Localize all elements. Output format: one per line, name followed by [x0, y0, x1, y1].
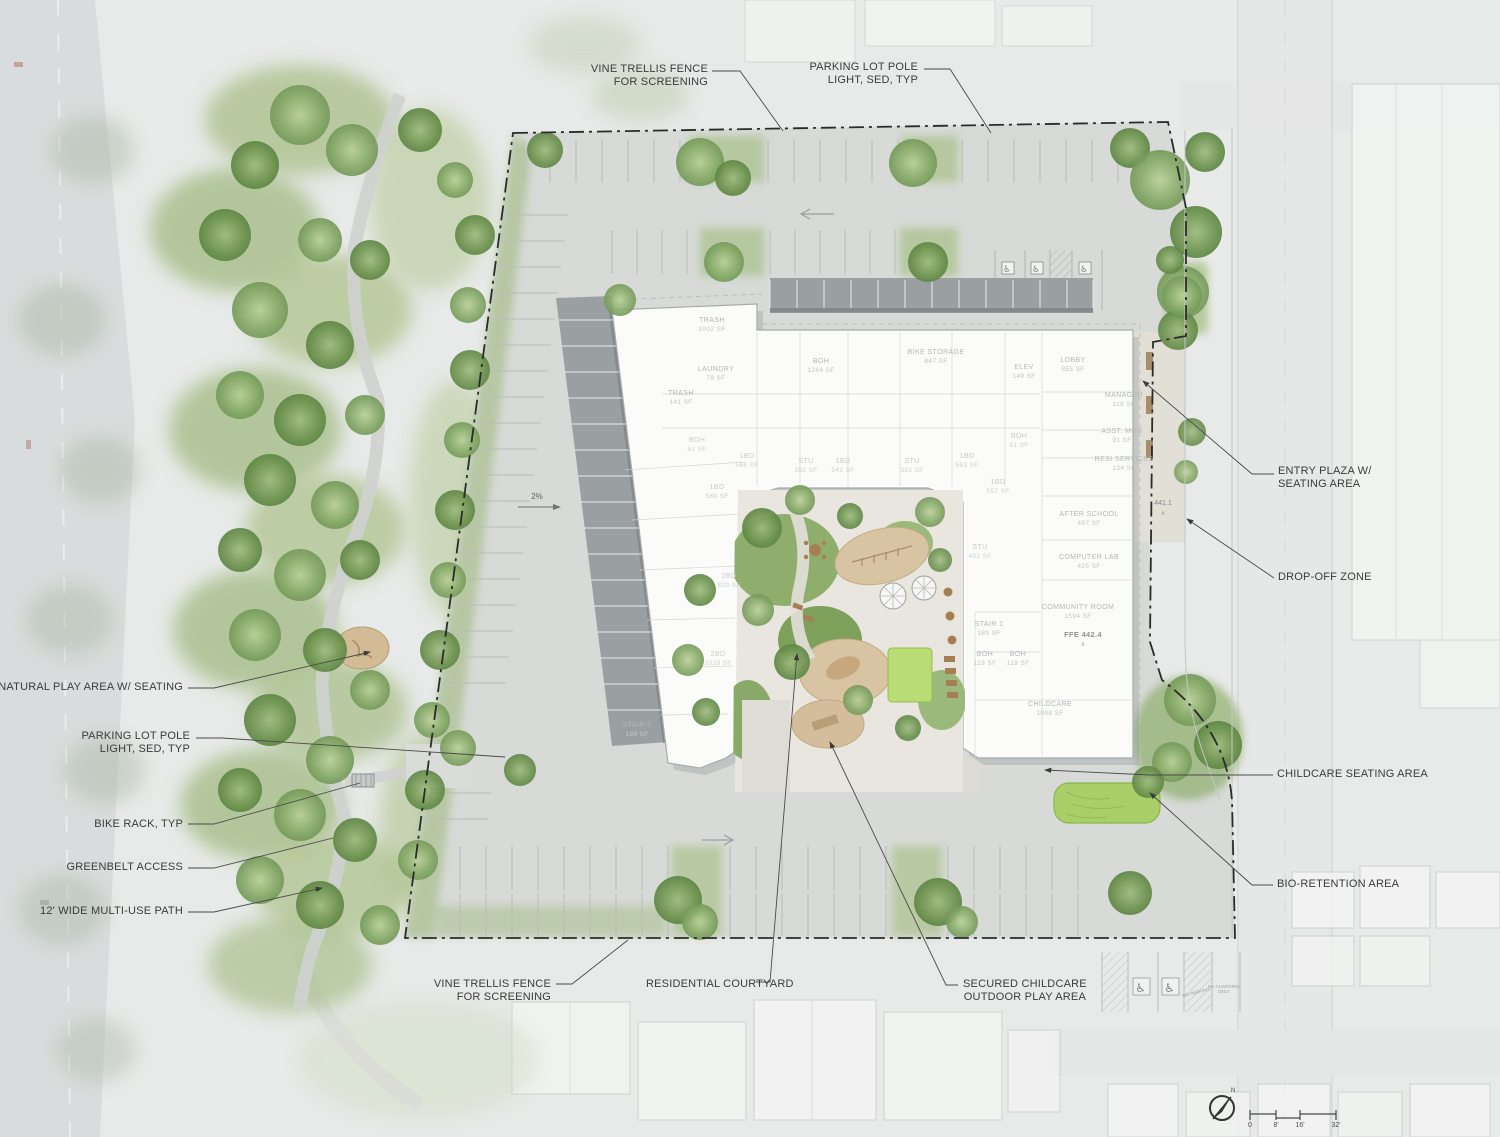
room-label-trash-small: TRASH141 SF	[668, 389, 694, 407]
north-letter: N	[1231, 1088, 1235, 1094]
room-name: 1BD	[991, 479, 1006, 486]
room-label-unit-stu-c: STU402 SF	[968, 543, 991, 561]
label-line: CHILDCARE SEATING AREA	[1277, 768, 1428, 780]
room-area: 1594 SF	[1042, 612, 1114, 621]
room-label-unit-1bd-a: 1BD568 SF	[735, 452, 758, 470]
bike-rack	[352, 774, 374, 787]
room-area: 119 SF	[1105, 400, 1143, 409]
room-area: 392 SF	[794, 466, 817, 475]
label-line: BIKE RACK, TYP	[94, 818, 183, 830]
room-name: STAIR 2	[623, 722, 652, 729]
callout-drop-off-zone: DROP-OFF ZONE	[1278, 571, 1372, 584]
room-name: BOH	[1010, 651, 1026, 658]
x-mark: x	[1162, 511, 1165, 517]
wheelchair-icon: ♿	[1003, 265, 1011, 275]
room-area: 1002 SF	[698, 325, 725, 334]
room-area: 563 SF	[955, 461, 978, 470]
room-name: 1BD	[740, 453, 755, 460]
callout-natural-play: NATURAL PLAY AREA W/ SEATING	[0, 681, 183, 694]
room-name: 2BD	[711, 651, 726, 658]
room-label-lobby: LOBBY855 SF	[1060, 356, 1085, 374]
room-area: 1098 SF	[1028, 709, 1072, 718]
label-line: VINE TRELLIS FENCE	[434, 978, 551, 991]
scale-tick-8: 8'	[1273, 1122, 1278, 1129]
callout-residential-courtyard: RESIDENTIAL COURTYARD	[646, 978, 794, 991]
room-area: 542 SF	[831, 466, 854, 475]
room-label-boh-main: BOH1264 SF	[807, 357, 834, 375]
label-line: ENTRY PLAZA W/	[1278, 465, 1371, 478]
room-area: 119 SF	[1007, 659, 1030, 668]
room-area: 557 SF	[986, 487, 1009, 496]
room-name: BOH	[1011, 433, 1027, 440]
room-label-elev: ELEV149 SF	[1012, 363, 1035, 381]
room-name: RESI SERVICES	[1095, 456, 1154, 463]
callout-greenbelt-access: GREENBELT ACCESS	[67, 861, 184, 874]
room-name: LOBBY	[1060, 357, 1085, 364]
label-line: PARKING LOT POLE	[809, 61, 918, 74]
spot-value: 441.1	[1154, 500, 1172, 507]
scale-tick-32: 32'	[1331, 1122, 1340, 1129]
room-name: COMPUTER LAB	[1059, 554, 1119, 561]
room-name: CHILDCARE	[1028, 701, 1072, 708]
room-name: BOH	[977, 651, 993, 658]
carport-north	[770, 278, 1093, 313]
planting-strip-bottom	[436, 906, 666, 936]
room-label-boh-b: BOH119 SF	[1007, 650, 1030, 668]
callout-parking-pole-top: PARKING LOT POLE LIGHT, SED, TYP	[809, 61, 918, 87]
callout-childcare-seating: CHILDCARE SEATING AREA	[1277, 768, 1428, 781]
slope-value: 2%	[531, 492, 543, 501]
room-label-trash-main: TRASH1002 SF	[698, 316, 725, 334]
room-area: 392 SF	[900, 466, 923, 475]
callout-secured-childcare: SECURED CHILDCARE OUTDOOR PLAY AREA	[963, 978, 1087, 1004]
ffe-value: FFE 442.4	[1064, 630, 1102, 639]
room-label-after-school: AFTER SCHOOL497 SF	[1059, 510, 1118, 528]
room-label-unit-2bd-b: 2BD1029 SF	[704, 650, 731, 668]
room-area: 569 SF	[705, 492, 728, 501]
label-line: DROP-OFF ZONE	[1278, 571, 1372, 583]
room-name: TRASH	[699, 317, 725, 324]
room-area: 149 SF	[1012, 372, 1035, 381]
room-area: 189 SF	[623, 730, 652, 739]
room-name: ELEV	[1014, 364, 1034, 371]
wheelchair-icon: ♿	[1164, 981, 1175, 995]
tick-label: 16'	[1295, 1122, 1304, 1129]
room-area: 829 SF	[717, 581, 740, 590]
room-area: 1264 SF	[807, 366, 834, 375]
label-line: FOR SCREENING	[591, 76, 708, 89]
label-line: FOR SCREENING	[434, 991, 551, 1004]
label-line: 12' WIDE MULTI-USE PATH	[40, 905, 183, 917]
tick-label: 0	[1248, 1122, 1252, 1129]
wheelchair-icon: ♿	[1080, 265, 1088, 275]
room-label-unit-2bd-a: 2BD829 SF	[717, 572, 740, 590]
wheelchair-icon: ♿	[1135, 981, 1146, 995]
ffe-annotation: FFE 442.4	[1064, 630, 1102, 639]
ev-charging-text: EV CHARGING ONLY	[1208, 984, 1240, 994]
label-line: LIGHT, SED, TYP	[809, 74, 918, 87]
room-name: 1BD	[836, 458, 851, 465]
room-name: ASST. MGR	[1101, 428, 1142, 435]
callout-vine-trellis-bottom: VINE TRELLIS FENCE FOR SCREENING	[434, 978, 551, 1004]
label-line: PARKING LOT POLE	[81, 730, 190, 743]
ffe-mark: x	[1082, 642, 1085, 648]
room-area: 189 SF	[975, 629, 1004, 638]
callout-multi-use-path: 12' WIDE MULTI-USE PATH	[40, 905, 183, 918]
label-line: LIGHT, SED, TYP	[81, 743, 190, 756]
label-line: OUTDOOR PLAY AREA	[963, 991, 1087, 1004]
callout-bike-rack: BIKE RACK, TYP	[94, 818, 183, 831]
room-label-manager: MANAGER119 SF	[1105, 391, 1143, 409]
room-name: AFTER SCHOOL	[1059, 511, 1118, 518]
room-name: BOH	[813, 358, 829, 365]
label-line: RESIDENTIAL COURTYARD	[646, 978, 794, 990]
room-area: 425 SF	[1059, 562, 1119, 571]
label-line: NATURAL PLAY AREA W/ SEATING	[0, 681, 183, 693]
callout-bio-retention: BIO-RETENTION AREA	[1277, 878, 1399, 891]
room-label-bike-storage: BIKE STORAGE847 SF	[908, 348, 965, 366]
north-label: N	[1231, 1088, 1235, 1094]
callout-entry-plaza: ENTRY PLAZA W/ SEATING AREA	[1278, 465, 1371, 491]
room-area: 568 SF	[735, 461, 758, 470]
umbrella-icon	[880, 583, 906, 609]
scale-tick-0: 0	[1248, 1122, 1252, 1129]
room-name: BIKE STORAGE	[908, 349, 965, 356]
room-label-unit-stu-a: STU392 SF	[794, 457, 817, 475]
spot-elevation-mark: x	[1162, 511, 1165, 517]
room-label-unit-stu-b: STU392 SF	[900, 457, 923, 475]
room-name: 2BD	[722, 573, 737, 580]
room-area: 847 SF	[908, 357, 965, 366]
tick-label: 32'	[1331, 1122, 1340, 1129]
callout-vine-trellis-top: VINE TRELLIS FENCE FOR SCREENING	[591, 63, 708, 89]
x-mark: x	[1082, 642, 1085, 648]
courtyard-walk-south	[742, 700, 790, 792]
label-line: BIO-RETENTION AREA	[1277, 878, 1399, 890]
room-area: 402 SF	[968, 552, 991, 561]
room-label-unit-1bd-c: 1BD542 SF	[831, 457, 854, 475]
site-plan-drawing: ♿ ♿ ♿ ♿ ♿	[0, 0, 1500, 1137]
wheelchair-icon: ♿	[1032, 265, 1040, 275]
room-label-boh-west: BOH61 SF	[687, 436, 706, 454]
label-line: VINE TRELLIS FENCE	[591, 63, 708, 76]
scale-tick-16: 16'	[1295, 1122, 1304, 1129]
room-name: STU	[798, 458, 813, 465]
room-label-computer-lab: COMPUTER LAB425 SF	[1059, 553, 1119, 571]
room-label-unit-1bd-e: 1BD557 SF	[986, 478, 1009, 496]
room-area: 61 SF	[687, 445, 706, 454]
slope-annotation: 2%	[531, 492, 543, 501]
room-label-boh-east: BOH81 SF	[1009, 432, 1028, 450]
room-name: TRASH	[668, 390, 694, 397]
callout-parking-pole-left: PARKING LOT POLE LIGHT, SED, TYP	[81, 730, 190, 756]
umbrella-icon	[912, 576, 936, 600]
room-name: BOH	[689, 437, 705, 444]
room-name: COMMUNITY ROOM	[1042, 604, 1114, 611]
room-area: 134 SF	[1095, 464, 1154, 473]
label-line: SEATING AREA	[1278, 478, 1371, 491]
spot-elevation: 441.1	[1154, 500, 1172, 507]
room-label-resi-services: RESI SERVICES134 SF	[1095, 455, 1154, 473]
room-label-laundry: LAUNDRY78 SF	[698, 365, 734, 383]
room-area: 81 SF	[1009, 441, 1028, 450]
room-area: 91 SF	[1101, 436, 1142, 445]
room-area: 1029 SF	[704, 659, 731, 668]
room-area: 78 SF	[698, 374, 734, 383]
room-label-stair-2: STAIR 2189 SF	[623, 721, 652, 739]
room-name: MANAGER	[1105, 392, 1143, 399]
room-label-childcare: CHILDCARE1098 SF	[1028, 700, 1072, 718]
room-label-unit-1bd-d: 1BD563 SF	[955, 452, 978, 470]
site-plan-canvas: ♿ ♿ ♿ ♿ ♿ VINE TRELLIS FENCE FOR SCREENI…	[0, 0, 1500, 1137]
room-label-unit-1bd-b: 1BD569 SF	[705, 483, 728, 501]
label-line: GREENBELT ACCESS	[67, 861, 184, 873]
room-area: 497 SF	[1059, 519, 1118, 528]
room-label-asst-mgr: ASST. MGR91 SF	[1101, 427, 1142, 445]
room-name: STU	[972, 544, 987, 551]
room-name: 1BD	[960, 453, 975, 460]
room-area: 141 SF	[668, 398, 694, 407]
room-name: STAIR 1	[975, 621, 1004, 628]
tick-label: 8'	[1273, 1122, 1278, 1129]
room-name: 1BD	[710, 484, 725, 491]
room-name: STU	[904, 458, 919, 465]
room-area: 855 SF	[1060, 365, 1085, 374]
room-area: 119 SF	[974, 659, 997, 668]
lawn	[888, 648, 932, 702]
room-label-community-room: COMMUNITY ROOM1594 SF	[1042, 603, 1114, 621]
ev-line: ONLY	[1208, 989, 1240, 994]
room-name: LAUNDRY	[698, 366, 734, 373]
room-label-stair-1: STAIR 1189 SF	[975, 620, 1004, 638]
room-label-boh-a: BOH119 SF	[974, 650, 997, 668]
label-line: SECURED CHILDCARE	[963, 978, 1087, 991]
